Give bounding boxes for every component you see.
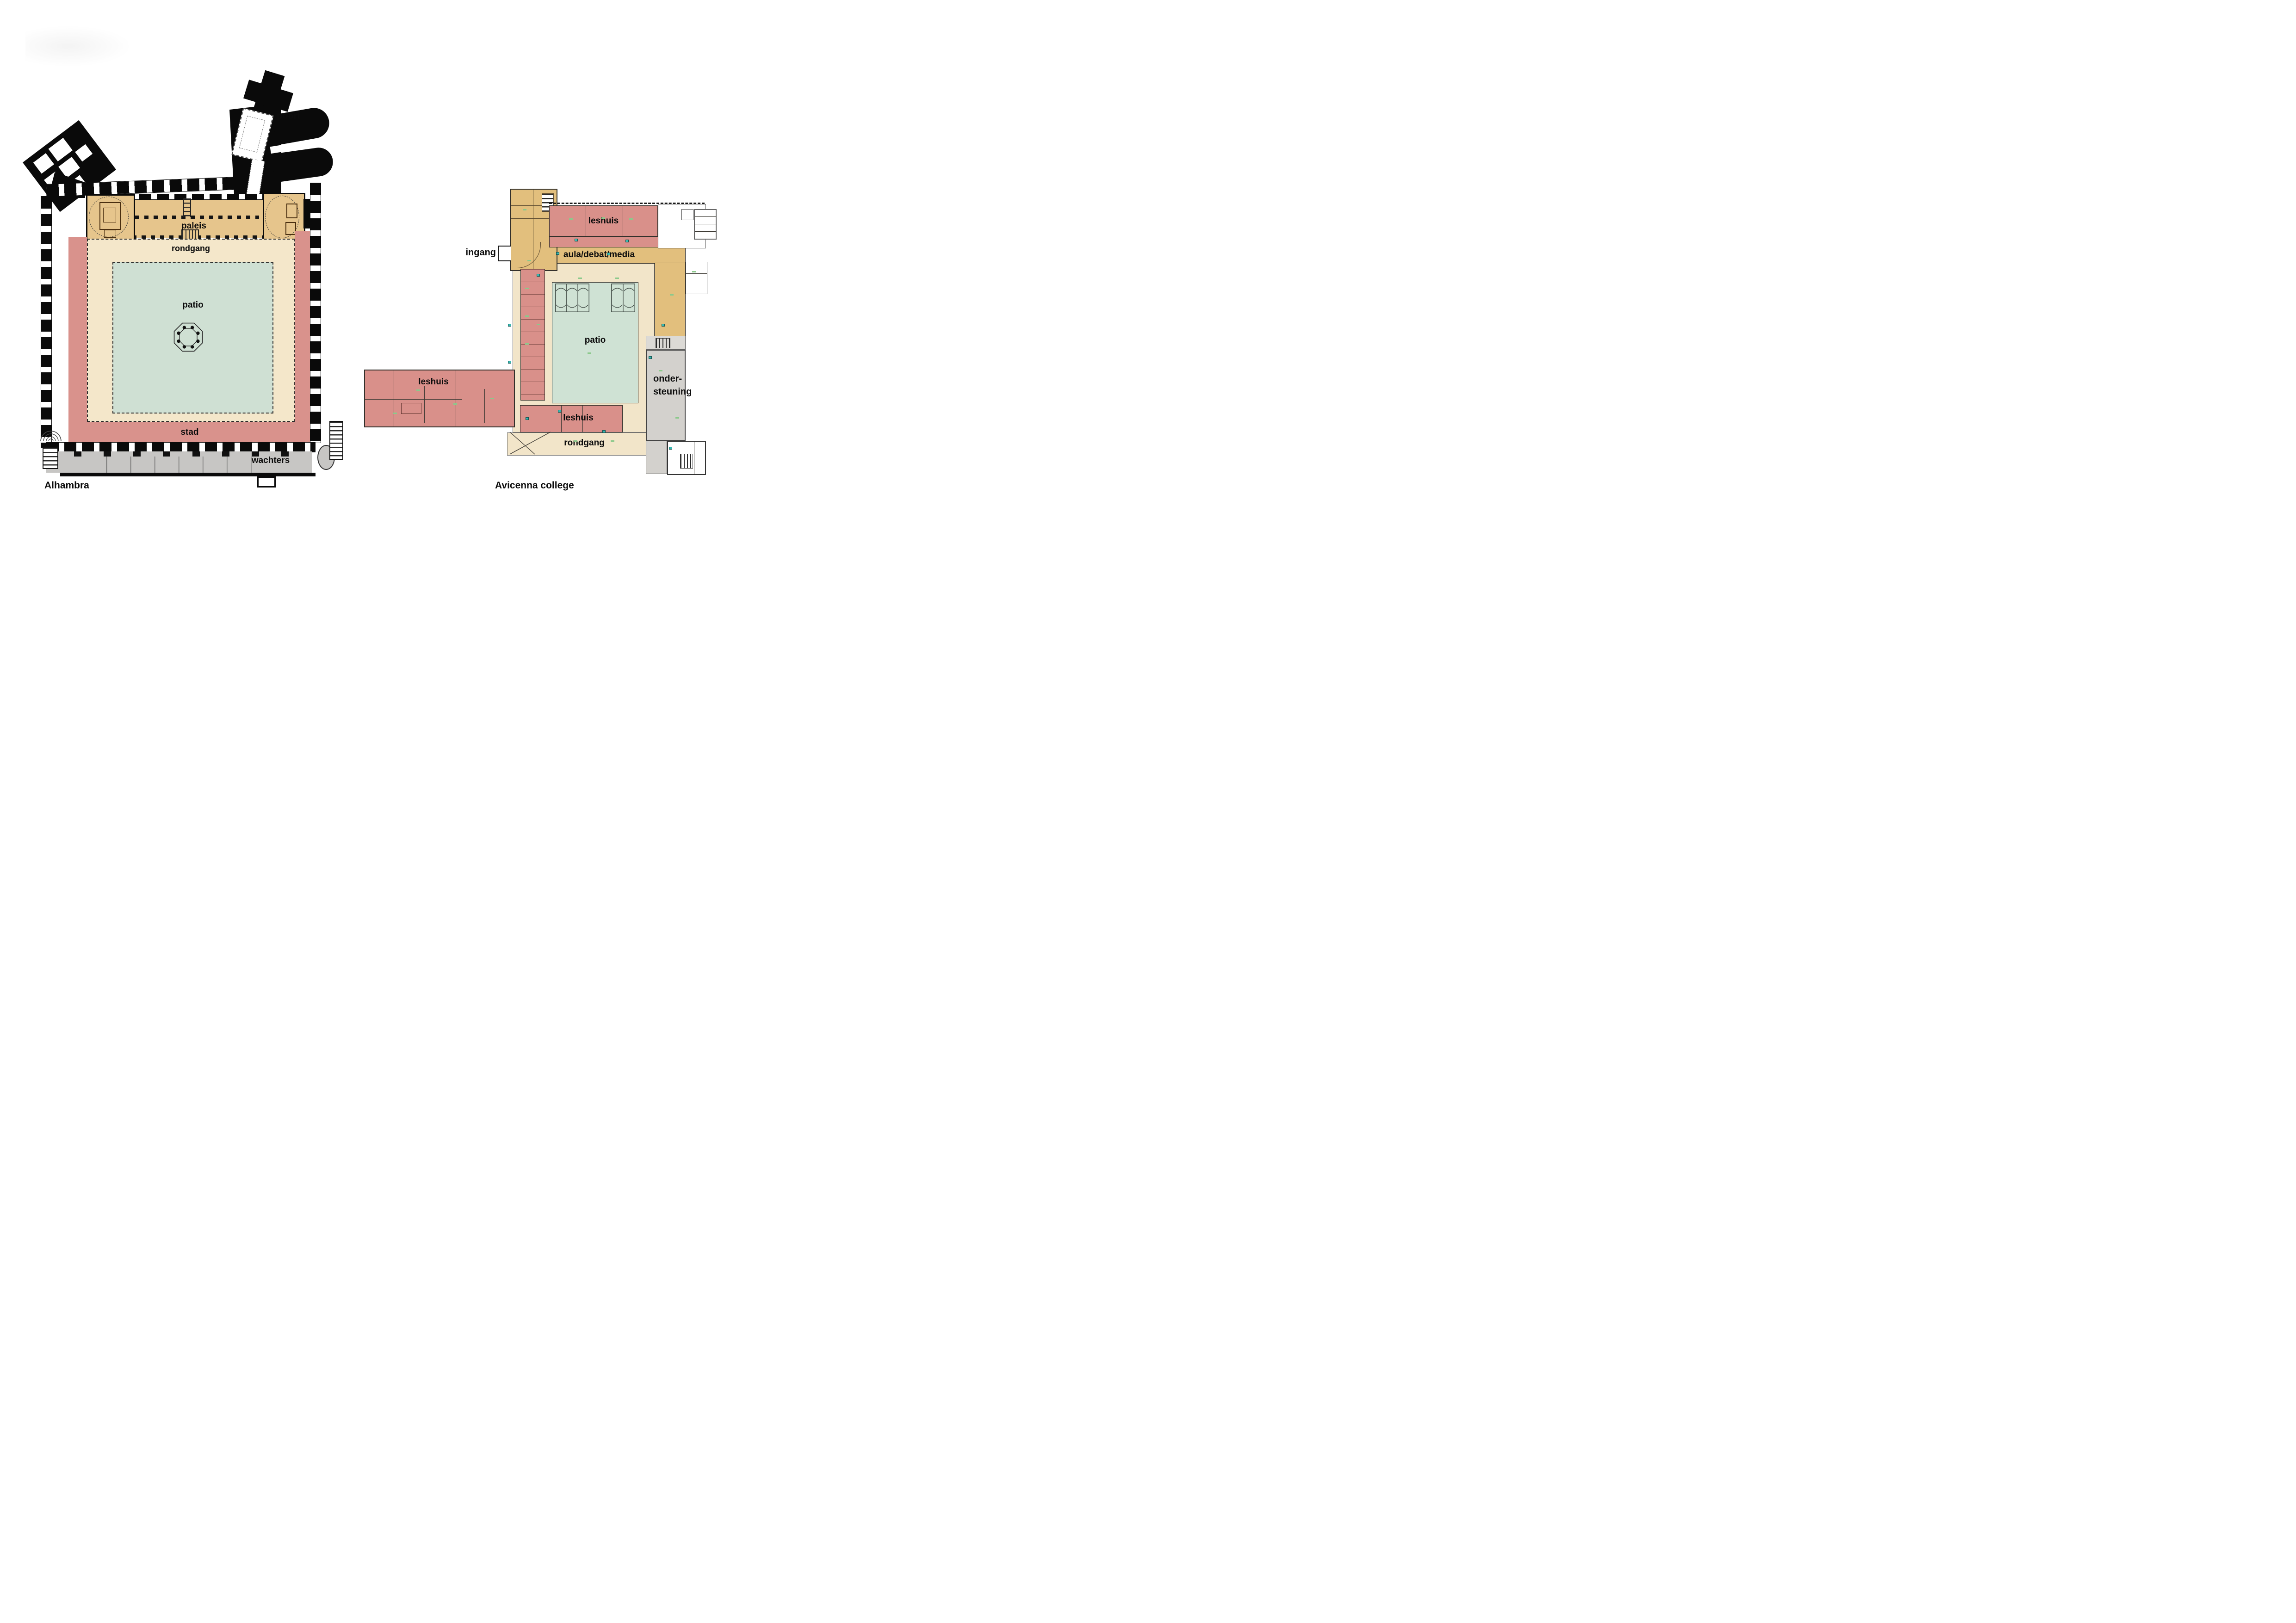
tower-dome-inner <box>103 208 116 222</box>
tower-window-a <box>286 204 297 218</box>
wing-wall <box>484 389 485 423</box>
annex-wall <box>695 224 716 224</box>
plumbing-fixture-icon <box>508 324 511 327</box>
label-leshuis-bottom: leshuis <box>532 413 625 423</box>
cad-note-mark <box>527 260 531 261</box>
southwest-stair-box <box>43 447 58 469</box>
room-box <box>681 209 693 220</box>
cad-note-mark <box>569 218 573 220</box>
cad-note-mark <box>525 343 529 345</box>
plumbing-fixture-icon <box>602 430 606 433</box>
avicenna-title: Avicenna college <box>495 480 574 491</box>
paleis-left-tower <box>86 194 135 242</box>
cad-note-mark <box>490 398 494 399</box>
paleis-stair-ladder <box>183 198 191 217</box>
cad-note-mark <box>393 413 397 414</box>
cad-note-mark <box>453 403 457 405</box>
annex-top-right <box>694 209 717 240</box>
room-wall <box>694 442 694 474</box>
east-stair-ladder <box>329 421 343 460</box>
fountain-octagon <box>172 321 204 353</box>
label-ondersteuning-line2: steuning <box>653 387 692 397</box>
cad-note-mark <box>670 294 674 296</box>
scan-artifact <box>25 25 132 67</box>
cad-note-mark <box>692 271 696 272</box>
stairwell <box>680 454 693 469</box>
paleis-column-row <box>135 216 259 219</box>
plumbing-fixture-icon <box>669 447 672 450</box>
rooms-right-mid <box>686 262 707 294</box>
cad-note-mark <box>615 278 619 279</box>
room-cell <box>33 153 54 173</box>
patio-canopy-group-b <box>611 284 635 312</box>
room-wall <box>678 204 678 230</box>
figure-canvas: poort paleis stad rondgang <box>0 0 725 513</box>
plumbing-fixture-icon <box>556 252 559 255</box>
grey-partition <box>647 410 685 410</box>
cad-note-mark <box>525 288 529 289</box>
label-wachters: wachters <box>224 456 317 466</box>
wing-wall <box>424 386 425 423</box>
plumbing-fixture-icon <box>537 274 540 277</box>
room-cell <box>49 138 73 161</box>
strip-stair <box>656 338 670 348</box>
ondersteuning-top-strip <box>646 336 686 350</box>
patio-canopy-group-a <box>555 284 589 312</box>
cad-note-mark <box>525 315 529 317</box>
cad-note-mark <box>675 417 679 419</box>
cad-note-mark <box>611 440 614 442</box>
annex-wall <box>695 231 716 232</box>
room-wall <box>658 225 691 225</box>
alhambra-title: Alhambra <box>44 480 89 491</box>
label-rondgang: rondgang <box>87 244 295 253</box>
sanitary-strip <box>520 269 545 401</box>
label-poort: poort <box>277 111 300 121</box>
alhambra-poort-complex <box>222 68 352 210</box>
label-avicenna-rondgang: rondgang <box>507 438 662 448</box>
plumbing-fixture-icon <box>526 417 529 420</box>
south-gate-stub <box>257 476 276 488</box>
outer-south-wall-line <box>60 473 316 476</box>
cad-note-mark <box>574 440 577 442</box>
room-wall <box>686 273 707 274</box>
plumbing-fixture-icon <box>649 356 652 359</box>
label-ondersteuning-line1: onder- <box>653 374 682 384</box>
wing-table <box>401 403 421 414</box>
plumbing-fixture-icon <box>575 239 578 241</box>
tower-curve-wall <box>514 242 541 268</box>
cad-note-mark <box>659 370 662 371</box>
ingang-vestibule <box>498 246 511 261</box>
plumbing-fixture-icon <box>558 410 561 413</box>
stad-band-west <box>68 237 87 422</box>
cad-note-mark <box>523 209 526 210</box>
annex-wall <box>695 216 716 217</box>
cad-note-mark <box>588 352 591 354</box>
southwest-stair-arcs <box>39 418 63 442</box>
alhambra-west-wall <box>41 196 52 448</box>
label-leshuis-left: leshuis <box>364 377 503 387</box>
plumbing-fixture-icon <box>508 361 511 364</box>
label-alhambra-patio: patio <box>112 301 273 310</box>
cad-note-mark <box>537 324 540 325</box>
alhambra-east-wall <box>310 183 321 443</box>
room-cell <box>75 144 93 162</box>
leshuis-top-strip <box>549 236 674 247</box>
wing-wall <box>365 399 462 400</box>
stad-band-east <box>295 231 311 422</box>
alhambra-south-wall <box>46 442 316 452</box>
label-avicenna-patio: patio <box>552 336 638 346</box>
cad-note-mark <box>629 218 633 220</box>
label-paleis: paleis <box>86 222 302 231</box>
plumbing-fixture-icon <box>662 324 665 327</box>
plumbing-fixture-icon <box>625 240 629 242</box>
ondersteuning-bottom-small <box>646 441 667 474</box>
label-ingang: ingang <box>464 247 496 258</box>
cad-note-mark <box>601 217 605 219</box>
rooms-bottom-right <box>667 441 706 475</box>
label-stad: stad <box>139 428 241 438</box>
cad-note-mark <box>578 278 582 279</box>
cad-note-mark <box>416 389 420 391</box>
plumbing-fixture-icon <box>607 253 610 255</box>
